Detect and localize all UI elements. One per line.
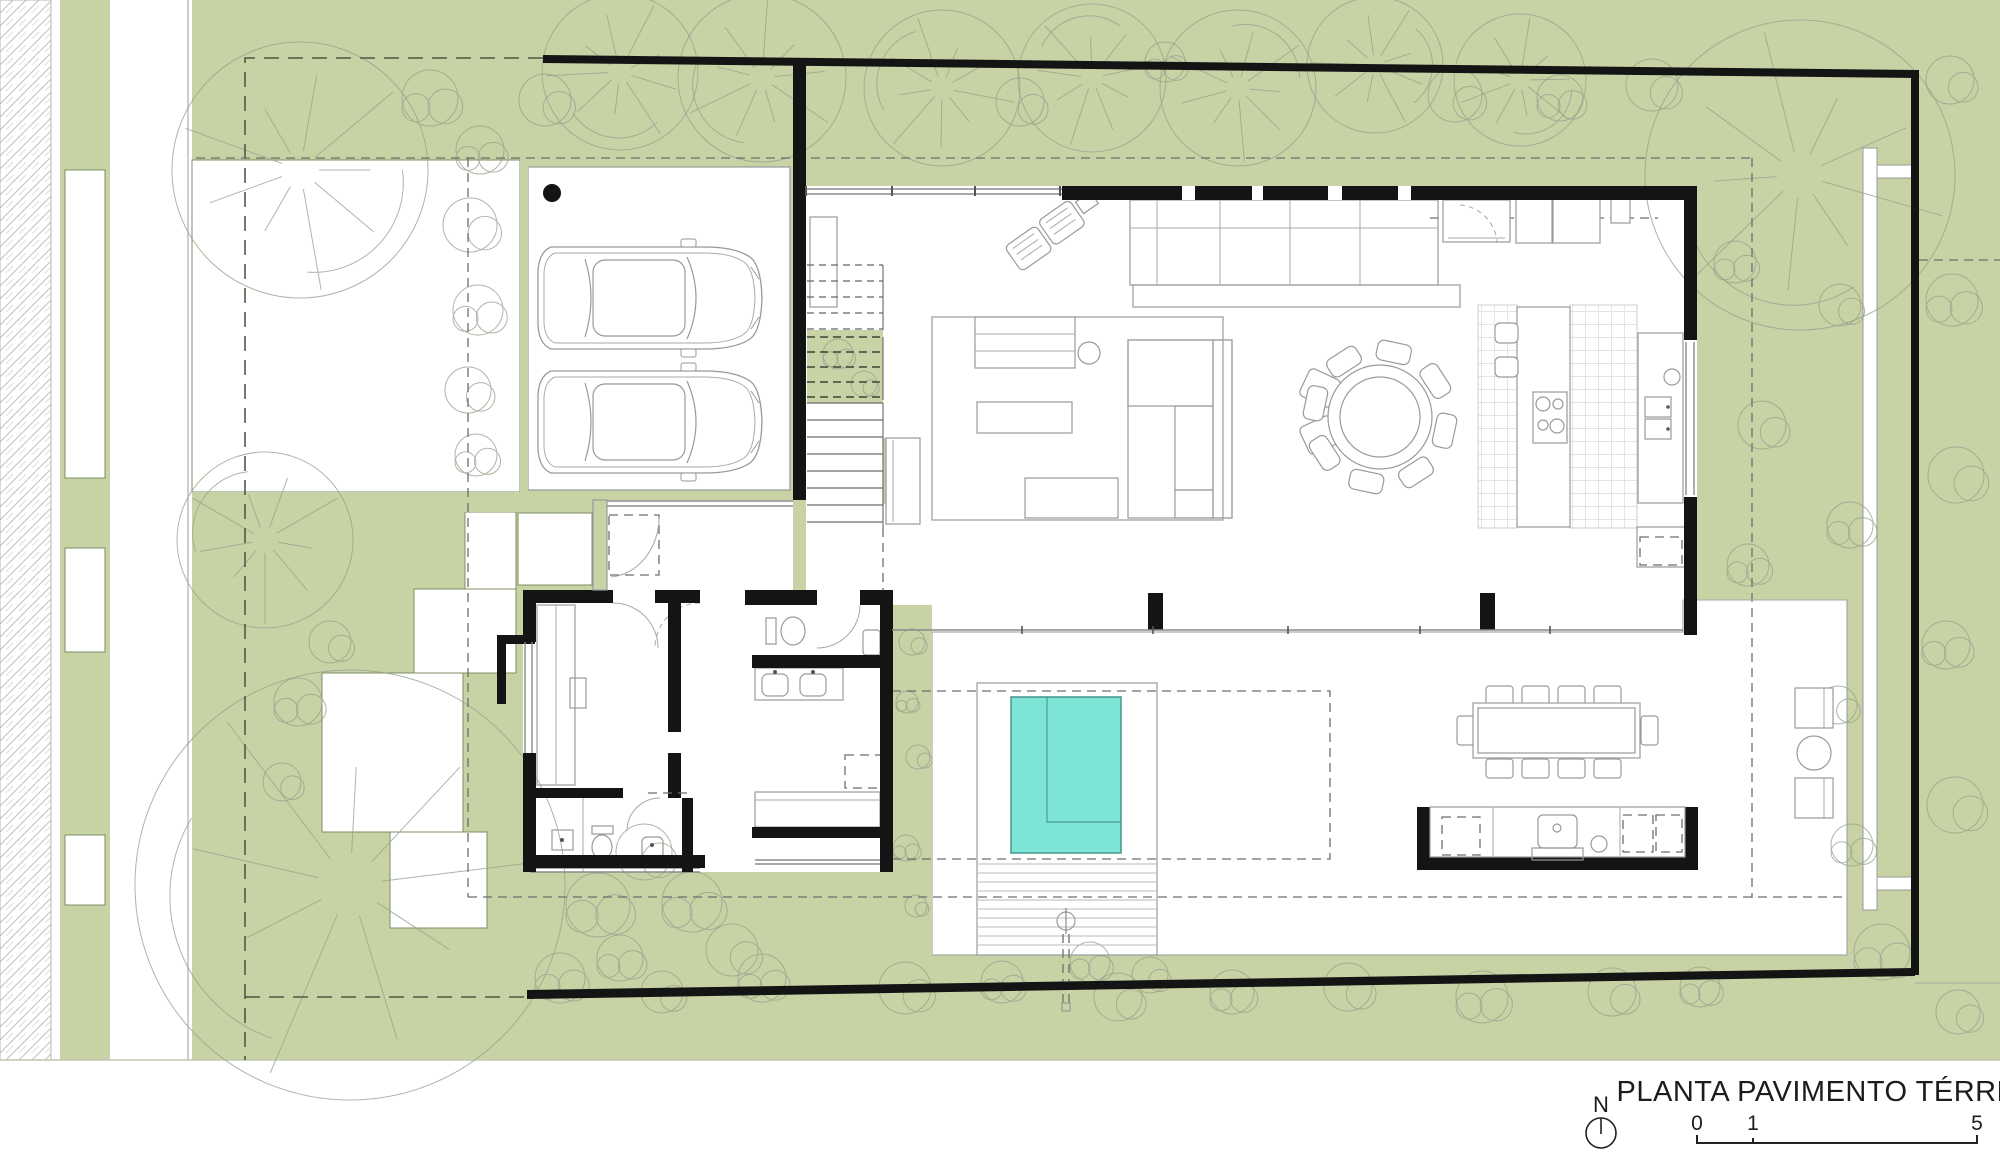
kitchen-island bbox=[1517, 307, 1570, 527]
facade-pier bbox=[1480, 593, 1495, 630]
driveway bbox=[192, 160, 520, 492]
outdoor-chair bbox=[1522, 759, 1549, 778]
outdoor-chair bbox=[1486, 759, 1513, 778]
entry-walkway bbox=[465, 512, 516, 589]
outdoor-chair bbox=[1486, 686, 1513, 705]
side-table bbox=[1078, 342, 1100, 364]
title-block: N PLANTA PAVIMENTO TÉRREO 0 1 5 bbox=[1586, 1075, 2000, 1148]
east-wall-lower bbox=[1684, 497, 1697, 635]
floor-plan-sheet: N PLANTA PAVIMENTO TÉRREO 0 1 5 bbox=[0, 0, 2000, 1170]
svg-text:5: 5 bbox=[1971, 1112, 1983, 1135]
north-label: N bbox=[1593, 1092, 1609, 1117]
north-wall bbox=[1062, 186, 1697, 200]
outdoor-chair bbox=[1594, 686, 1621, 705]
tv-sideboard bbox=[975, 317, 1075, 368]
east-walkway bbox=[1863, 148, 1877, 910]
outdoor-chair bbox=[1457, 716, 1474, 745]
coffee-table bbox=[977, 402, 1072, 433]
scale-bar: 0 1 5 bbox=[1691, 1112, 1983, 1143]
west-wall bbox=[793, 58, 806, 500]
patio-3 bbox=[390, 832, 487, 928]
lounge-set-east bbox=[1795, 688, 1833, 818]
outdoor-chair bbox=[1558, 686, 1585, 705]
street-hatch-strip bbox=[0, 0, 51, 1060]
pool bbox=[1011, 697, 1121, 853]
column-dot bbox=[543, 184, 561, 202]
drawing-title: PLANTA PAVIMENTO TÉRREO bbox=[1617, 1075, 2000, 1108]
outdoor-chair bbox=[1594, 759, 1621, 778]
lounge-table bbox=[1797, 736, 1831, 770]
outdoor-chair bbox=[1558, 759, 1585, 778]
svg-text:0: 0 bbox=[1691, 1112, 1703, 1135]
stool bbox=[1495, 357, 1518, 377]
patio-2 bbox=[322, 673, 463, 832]
stool bbox=[1495, 323, 1518, 343]
floor-plan-svg: N PLANTA PAVIMENTO TÉRREO 0 1 5 bbox=[0, 0, 2000, 1170]
outdoor-table bbox=[1473, 703, 1640, 758]
outdoor-chair bbox=[1641, 716, 1658, 745]
lot-wall-right bbox=[1911, 70, 1919, 975]
entry-hall-floor bbox=[607, 500, 793, 590]
svg-text:1: 1 bbox=[1747, 1112, 1759, 1135]
east-wall-upper bbox=[1684, 186, 1697, 340]
outdoor-chair bbox=[1522, 686, 1549, 705]
ottoman bbox=[1025, 478, 1118, 518]
facade-pier bbox=[1148, 593, 1163, 630]
kitchen-counter-east bbox=[1638, 333, 1683, 503]
